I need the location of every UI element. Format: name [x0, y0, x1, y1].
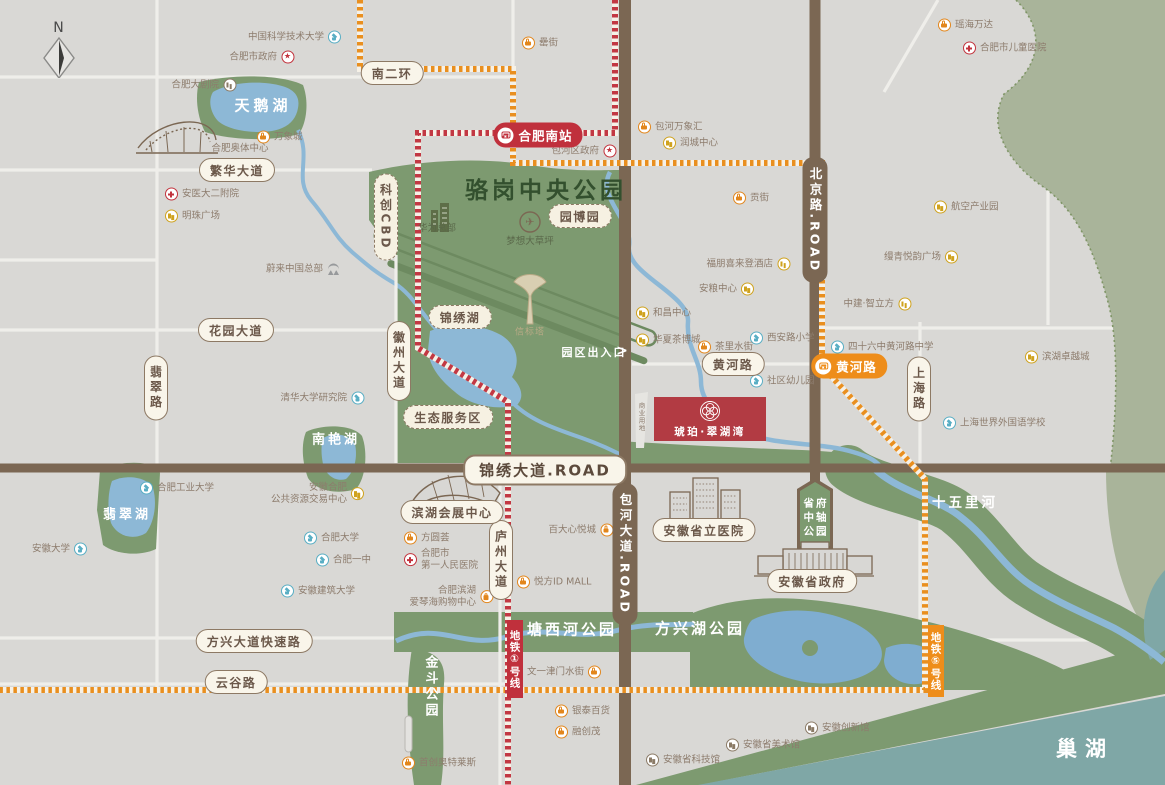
nio-icon [327, 263, 340, 276]
gold-icon [934, 201, 947, 214]
poi-label: 西安路小学 [767, 332, 815, 344]
shield-label-line: 省府 [804, 496, 829, 511]
poi-label: 安粮中心 [699, 283, 737, 295]
poi-item: 福朋喜来登酒店 [706, 258, 790, 271]
poi-item: 罍街 [522, 37, 558, 50]
metro-train-icon [497, 127, 513, 143]
metro-line-banner: 地铁①号线 [507, 620, 523, 698]
poi-label: 贡街 [750, 192, 769, 204]
poi-item: 合肥大剧院 [171, 79, 236, 92]
poi-label: 华夏茶博城 [653, 334, 701, 346]
poi-label: 社区幼儿园 [767, 375, 815, 387]
area-label: 南艳湖 [312, 429, 360, 448]
area-label: 翡翠湖 [103, 504, 151, 523]
poi-label: 蔚来中国总部 [266, 263, 323, 275]
poi-label: 文一津门水街 [527, 666, 584, 678]
poi-label: 福朋喜来登酒店 [706, 258, 773, 270]
park-zone-pill: 园博园 [549, 204, 612, 228]
poi-label: 融创茂 [572, 726, 601, 738]
metro-line-banner: 地铁⑤号线 [928, 625, 944, 697]
poi-label: 合肥市政府 [229, 51, 277, 63]
shield-label-line: 公园 [804, 524, 829, 539]
poi-item: 银泰百货 [555, 705, 610, 718]
poi-label: 明珠广场 [182, 210, 220, 222]
school-icon [281, 585, 294, 598]
poi-label: 清华大学研究院 [280, 392, 347, 404]
poi-item: 安粮中心 [699, 283, 754, 296]
shop-icon [938, 19, 951, 32]
poi-item: 合肥大学 [304, 532, 359, 545]
poi-item: 航空产业园 [934, 201, 999, 214]
poi-item: 首创奥特莱斯 [402, 757, 476, 770]
poi-label: 润城中心 [680, 137, 718, 149]
poi-label: 中建·智立方 [843, 298, 894, 310]
poi-item: 合肥滨湖爱琴海购物中心 [409, 585, 493, 609]
poi-label: 安医大二附院 [182, 188, 239, 200]
road-label-pill: 翡翠路 [144, 356, 168, 421]
area-label: 天鹅湖 [234, 95, 291, 116]
park-zone-pill: 锦绣湖 [429, 305, 492, 329]
poi-label: 罍街 [539, 37, 558, 49]
shield-label-line: 中轴 [804, 510, 829, 525]
poi-item: 安徽合肥公共资源交易中心 [271, 482, 364, 506]
museum-icon [726, 739, 739, 752]
poi-label: 航空产业园 [951, 201, 999, 213]
hospital-icon [963, 42, 976, 55]
gold-icon [945, 251, 958, 264]
poi-label: 和昌中心 [653, 307, 691, 319]
poi-item: 上海世界外国语学校 [943, 417, 1046, 430]
gold-icon [898, 298, 911, 311]
road-label-pill: 云谷路 [205, 670, 268, 694]
poi-item: 中国科学技术大学 [248, 31, 341, 44]
poi-label: 首创奥特莱斯 [419, 757, 476, 769]
gold-icon [777, 258, 790, 271]
poi-label: 万象城 [274, 131, 303, 143]
gold-icon [636, 334, 649, 347]
school-icon [316, 554, 329, 567]
gold-icon [636, 307, 649, 320]
poi-label: 安徽建筑大学 [298, 585, 355, 597]
shop-icon [517, 576, 530, 589]
shop-icon [698, 341, 711, 354]
poi-item: 滨湖卓越城 [1025, 351, 1090, 364]
location-map: N 琥珀·翠湖湾 中国科学技术大学合肥市政府合肥大剧院万象城安医大二附院明珠广场… [0, 0, 1165, 785]
park-zone-pill: 生态服务区 [403, 405, 493, 429]
school-icon [831, 341, 844, 354]
station-name: 黄河路 [836, 357, 877, 376]
poi-item: 缦青悦韵广场 [884, 251, 958, 264]
poi-label: 合肥工业大学 [157, 482, 214, 494]
poi-item: 合肥一中 [316, 554, 371, 567]
area-label: 金斗公园 [421, 655, 440, 719]
poi-item: 瑶海万达 [938, 19, 993, 32]
school-icon [750, 375, 763, 388]
area-label: 信标塔 [515, 325, 545, 338]
poi-item: 安徽创新馆 [805, 722, 870, 735]
road-label-pill: 上海路 [907, 357, 931, 422]
museum-icon [223, 79, 236, 92]
poi-label: 安徽省科技馆 [663, 754, 720, 766]
poi-label: 百大心悦城 [548, 524, 596, 536]
metro-train-icon [815, 358, 831, 374]
shop-icon [522, 37, 535, 50]
shop-icon [404, 532, 417, 545]
school-icon [74, 543, 87, 556]
poi-item: 合肥市第一人民医院 [404, 548, 478, 572]
poi-label: 上海世界外国语学校 [960, 417, 1046, 429]
poi-item: 安徽大学 [32, 543, 87, 556]
road-label-pill: 黄河路 [702, 352, 765, 376]
poi-label: 合肥市儿童医院 [980, 42, 1047, 54]
road-label-pill: 方兴大道快速路 [196, 629, 313, 653]
poi-label: 瑶海万达 [955, 19, 993, 31]
poi-label: 安徽合肥公共资源交易中心 [271, 482, 347, 506]
poi-item: 四十六中黄河路中学 [831, 341, 934, 354]
area-label: 十五里河 [932, 491, 998, 511]
poi-item: 蔚来中国总部 [266, 263, 340, 276]
poi-item: 融创茂 [555, 726, 601, 739]
poi-item: 方圆荟 [404, 532, 450, 545]
poi-item: 华夏茶博城 [636, 334, 701, 347]
poi-item: 贡街 [733, 192, 769, 205]
poi-item: 文一津门水街 [527, 666, 601, 679]
road-capsule-label: 北京路.ROAD [803, 157, 828, 283]
poi-item: 西安路小学 [750, 332, 815, 345]
park-zone-pill: 科创CBD [374, 174, 398, 261]
poi-label: 合肥市第一人民医院 [421, 548, 478, 572]
poi-item: 合肥市政府 [229, 51, 294, 64]
area-label: 华为总部 [418, 220, 456, 234]
poi-label: 缦青悦韵广场 [884, 251, 941, 263]
poi-item: 安徽省科技馆 [646, 754, 720, 767]
area-label: 骆岗中央公园 [465, 171, 627, 205]
area-label: 塘西河公园 [527, 619, 617, 640]
poi-label: 合肥一中 [333, 554, 371, 566]
poi-label: 银泰百货 [572, 705, 610, 717]
poi-item: 安徽建筑大学 [281, 585, 355, 598]
gov-icon [603, 145, 616, 158]
school-icon [304, 532, 317, 545]
shop-icon [588, 666, 601, 679]
poi-label: 包河万象汇 [655, 121, 703, 133]
gold-icon [741, 283, 754, 296]
compass-n-label: N [53, 20, 64, 36]
poi-item: 润城中心 [663, 137, 718, 150]
property-flower-logo-icon [698, 399, 722, 423]
shop-icon [638, 121, 651, 134]
property-marker: 琥珀·翠湖湾 [654, 397, 766, 441]
station-name: 合肥南站 [518, 126, 572, 145]
poi-label: 合肥滨湖爱琴海购物中心 [409, 585, 476, 609]
shop-icon [600, 524, 613, 537]
area-label: 合肥奥体中心 [211, 140, 268, 154]
poi-label: 安徽大学 [32, 543, 70, 555]
map-labels-layer: 中国科学技术大学合肥市政府合肥大剧院万象城安医大二附院明珠广场蔚来中国总部罍街包… [0, 0, 1165, 785]
poi-item: 合肥市儿童医院 [963, 42, 1047, 55]
shop-icon [555, 726, 568, 739]
area-label: ✈ [525, 216, 534, 229]
poi-label: 四十六中黄河路中学 [848, 341, 934, 353]
poi-item: 安徽省美术馆 [726, 739, 800, 752]
area-label: 方兴湖公园 [655, 618, 745, 639]
school-icon [351, 392, 364, 405]
shop-icon [555, 705, 568, 718]
gold-icon [351, 488, 364, 501]
poi-label: 悦方ID MALL [534, 576, 591, 588]
road-label-pill: 繁华大道 [199, 158, 275, 182]
gold-icon [165, 210, 178, 223]
road-label-pill: 南二环 [361, 61, 424, 85]
poi-item: 和昌中心 [636, 307, 691, 320]
poi-item: 社区幼儿园 [750, 375, 815, 388]
museum-icon [646, 754, 659, 767]
hospital-icon [165, 188, 178, 201]
school-icon [328, 31, 341, 44]
poi-item: 包河万象汇 [638, 121, 703, 134]
poi-item: 百大心悦城 [548, 524, 613, 537]
metro-station-badge: 黄河路 [811, 354, 887, 379]
gold-icon [1025, 351, 1038, 364]
poi-item: 合肥工业大学 [140, 482, 214, 495]
poi-label: 安徽创新馆 [822, 722, 870, 734]
shop-icon [402, 757, 415, 770]
road-label-pill: 锦绣大道.ROAD [463, 455, 627, 486]
compass: N [36, 22, 82, 78]
road-label-pill: 花园大道 [198, 318, 274, 342]
property-name: 琥珀·翠湖湾 [674, 424, 746, 439]
poi-label: 合肥大学 [321, 532, 359, 544]
shop-icon [733, 192, 746, 205]
road-label-pill: 安徽省政府 [767, 569, 857, 593]
poi-item: 中建·智立方 [843, 298, 911, 311]
gold-icon [663, 137, 676, 150]
poi-label: 中国科学技术大学 [248, 31, 324, 43]
poi-item: 悦方ID MALL [517, 576, 591, 589]
metro-station-badge: 合肥南站 [493, 123, 582, 148]
poi-label: 滨湖卓越城 [1042, 351, 1090, 363]
road-label-pill: 安徽省立医院 [652, 518, 755, 542]
school-icon [140, 482, 153, 495]
area-label: 梦想大草坪 [506, 233, 554, 247]
hospital-icon [404, 554, 417, 567]
school-icon [943, 417, 956, 430]
area-label: 巢湖 [1056, 733, 1114, 763]
road-capsule-label: 包河大道.ROAD [613, 483, 638, 625]
poi-label: 合肥大剧院 [171, 79, 219, 91]
museum-icon [805, 722, 818, 735]
area-label: 商业用地 [636, 402, 646, 432]
area-label: > [616, 343, 628, 359]
road-label-pill: 滨湖会展中心 [400, 500, 503, 524]
poi-item: 安医大二附院 [165, 188, 239, 201]
road-label-pill: 徽州大道 [387, 321, 411, 401]
gov-icon [281, 51, 294, 64]
poi-label: 安徽省美术馆 [743, 739, 800, 751]
poi-label: 方圆荟 [421, 532, 450, 544]
poi-item: 清华大学研究院 [280, 392, 364, 405]
poi-item: 明珠广场 [165, 210, 220, 223]
road-label-pill: 庐州大道 [489, 520, 513, 600]
